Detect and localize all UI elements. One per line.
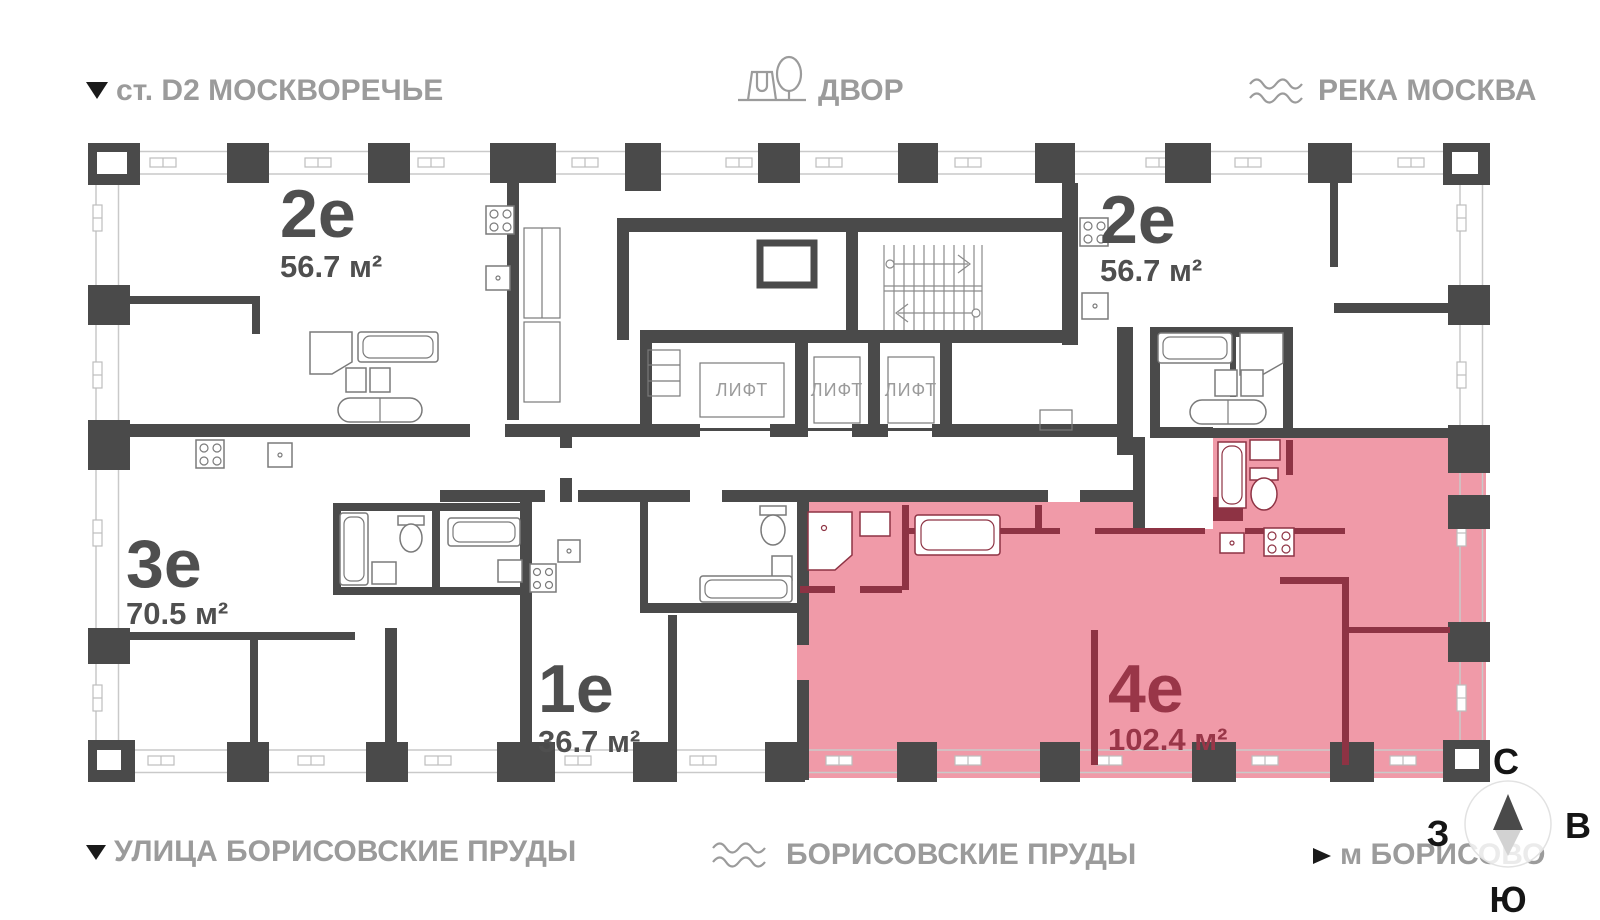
elevators: ЛИФТ ЛИФТ ЛИФТ [700,357,937,423]
apartment-area: 56.7 м² [1100,253,1202,288]
stove-icon [1264,528,1294,556]
sink-icon [1241,370,1263,396]
landmark-courtyard: ДВОР [738,57,904,107]
sink-icon [1250,440,1280,460]
toilet-icon [760,506,786,515]
apartment-type: 3е [126,526,202,602]
apartment-2e-left[interactable]: 2е 56.7 м² [280,176,382,284]
sink-icon [860,512,890,536]
right-triangle-icon [1313,848,1331,864]
down-triangle-icon [86,82,108,99]
stove-icon [486,206,514,234]
apartment-type: 2е [280,176,356,252]
landmark-label: БОРИСОВСКИЕ ПРУДЫ [786,838,1136,871]
apartment-1e[interactable]: 1е 36.7 м² [538,651,640,759]
landmark-label: ДВОР [818,74,904,107]
kitchen-sink-icon [1082,293,1108,319]
sink-icon [1215,370,1237,396]
kitchen-sink-icon [1220,533,1244,553]
sink-icon [370,368,390,392]
landmark-label: РЕКА МОСКВА [1318,74,1536,107]
courtyard-icon [738,57,806,100]
elevator-label: ЛИФТ [811,380,863,400]
apartment-type: 4е [1108,651,1184,727]
stairs [884,245,982,330]
stove-icon [196,440,224,468]
kitchen-sink-icon [558,540,580,562]
apartment-area: 56.7 м² [280,249,382,284]
shaft-icon [648,350,680,396]
waves-icon [713,844,765,867]
landmark-station: ст. D2 МОСКВОРЕЧЬЕ [86,74,443,107]
landmark-street: УЛИЦА БОРИСОВСКИЕ ПРУДЫ [86,835,576,868]
apartment-2e-right[interactable]: 2е 56.7 м² [1100,182,1202,288]
apartment-area: 36.7 м² [538,724,640,759]
landmark-label: УЛИЦА БОРИСОВСКИЕ ПРУДЫ [114,835,576,868]
apartment-3e[interactable]: 3е 70.5 м² [126,526,228,631]
shower-icon [1240,333,1283,375]
apartment-area: 102.4 м² [1108,722,1227,757]
sink-icon [346,368,366,392]
stove-icon [530,564,556,592]
down-triangle-icon [86,845,106,860]
apartment-type: 1е [538,651,614,727]
landmark-label: ст. D2 МОСКВОРЕЧЬЕ [116,74,443,107]
waves-icon [1250,80,1302,103]
compass-west-label: З [1427,813,1450,854]
compass-east-label: В [1565,805,1591,846]
elevator-label: ЛИФТ [885,380,937,400]
landmark-river: РЕКА МОСКВА [1250,74,1536,107]
compass-south-label: Ю [1489,879,1526,920]
floor-plan-svg: ЛИФТ ЛИФТ ЛИФТ 2е 56.7 м² 2е 56.7 м² 3е … [0,0,1600,920]
apartment-type: 2е [1100,182,1176,258]
elevator-label: ЛИФТ [716,380,768,400]
apartment-area: 70.5 м² [126,596,228,631]
kitchen-sink-icon [486,266,510,290]
compass-north-label: С [1493,741,1519,782]
apartment-4e-vestibule [1145,437,1213,529]
sink-icon [498,560,522,582]
kitchen-sink-icon [268,443,292,467]
shower-icon [808,512,852,570]
bathtub-icon [915,515,1000,555]
sink-icon [372,562,396,584]
cabinet-icon [524,322,560,402]
landmark-ponds: БОРИСОВСКИЕ ПРУДЫ [713,838,1136,871]
